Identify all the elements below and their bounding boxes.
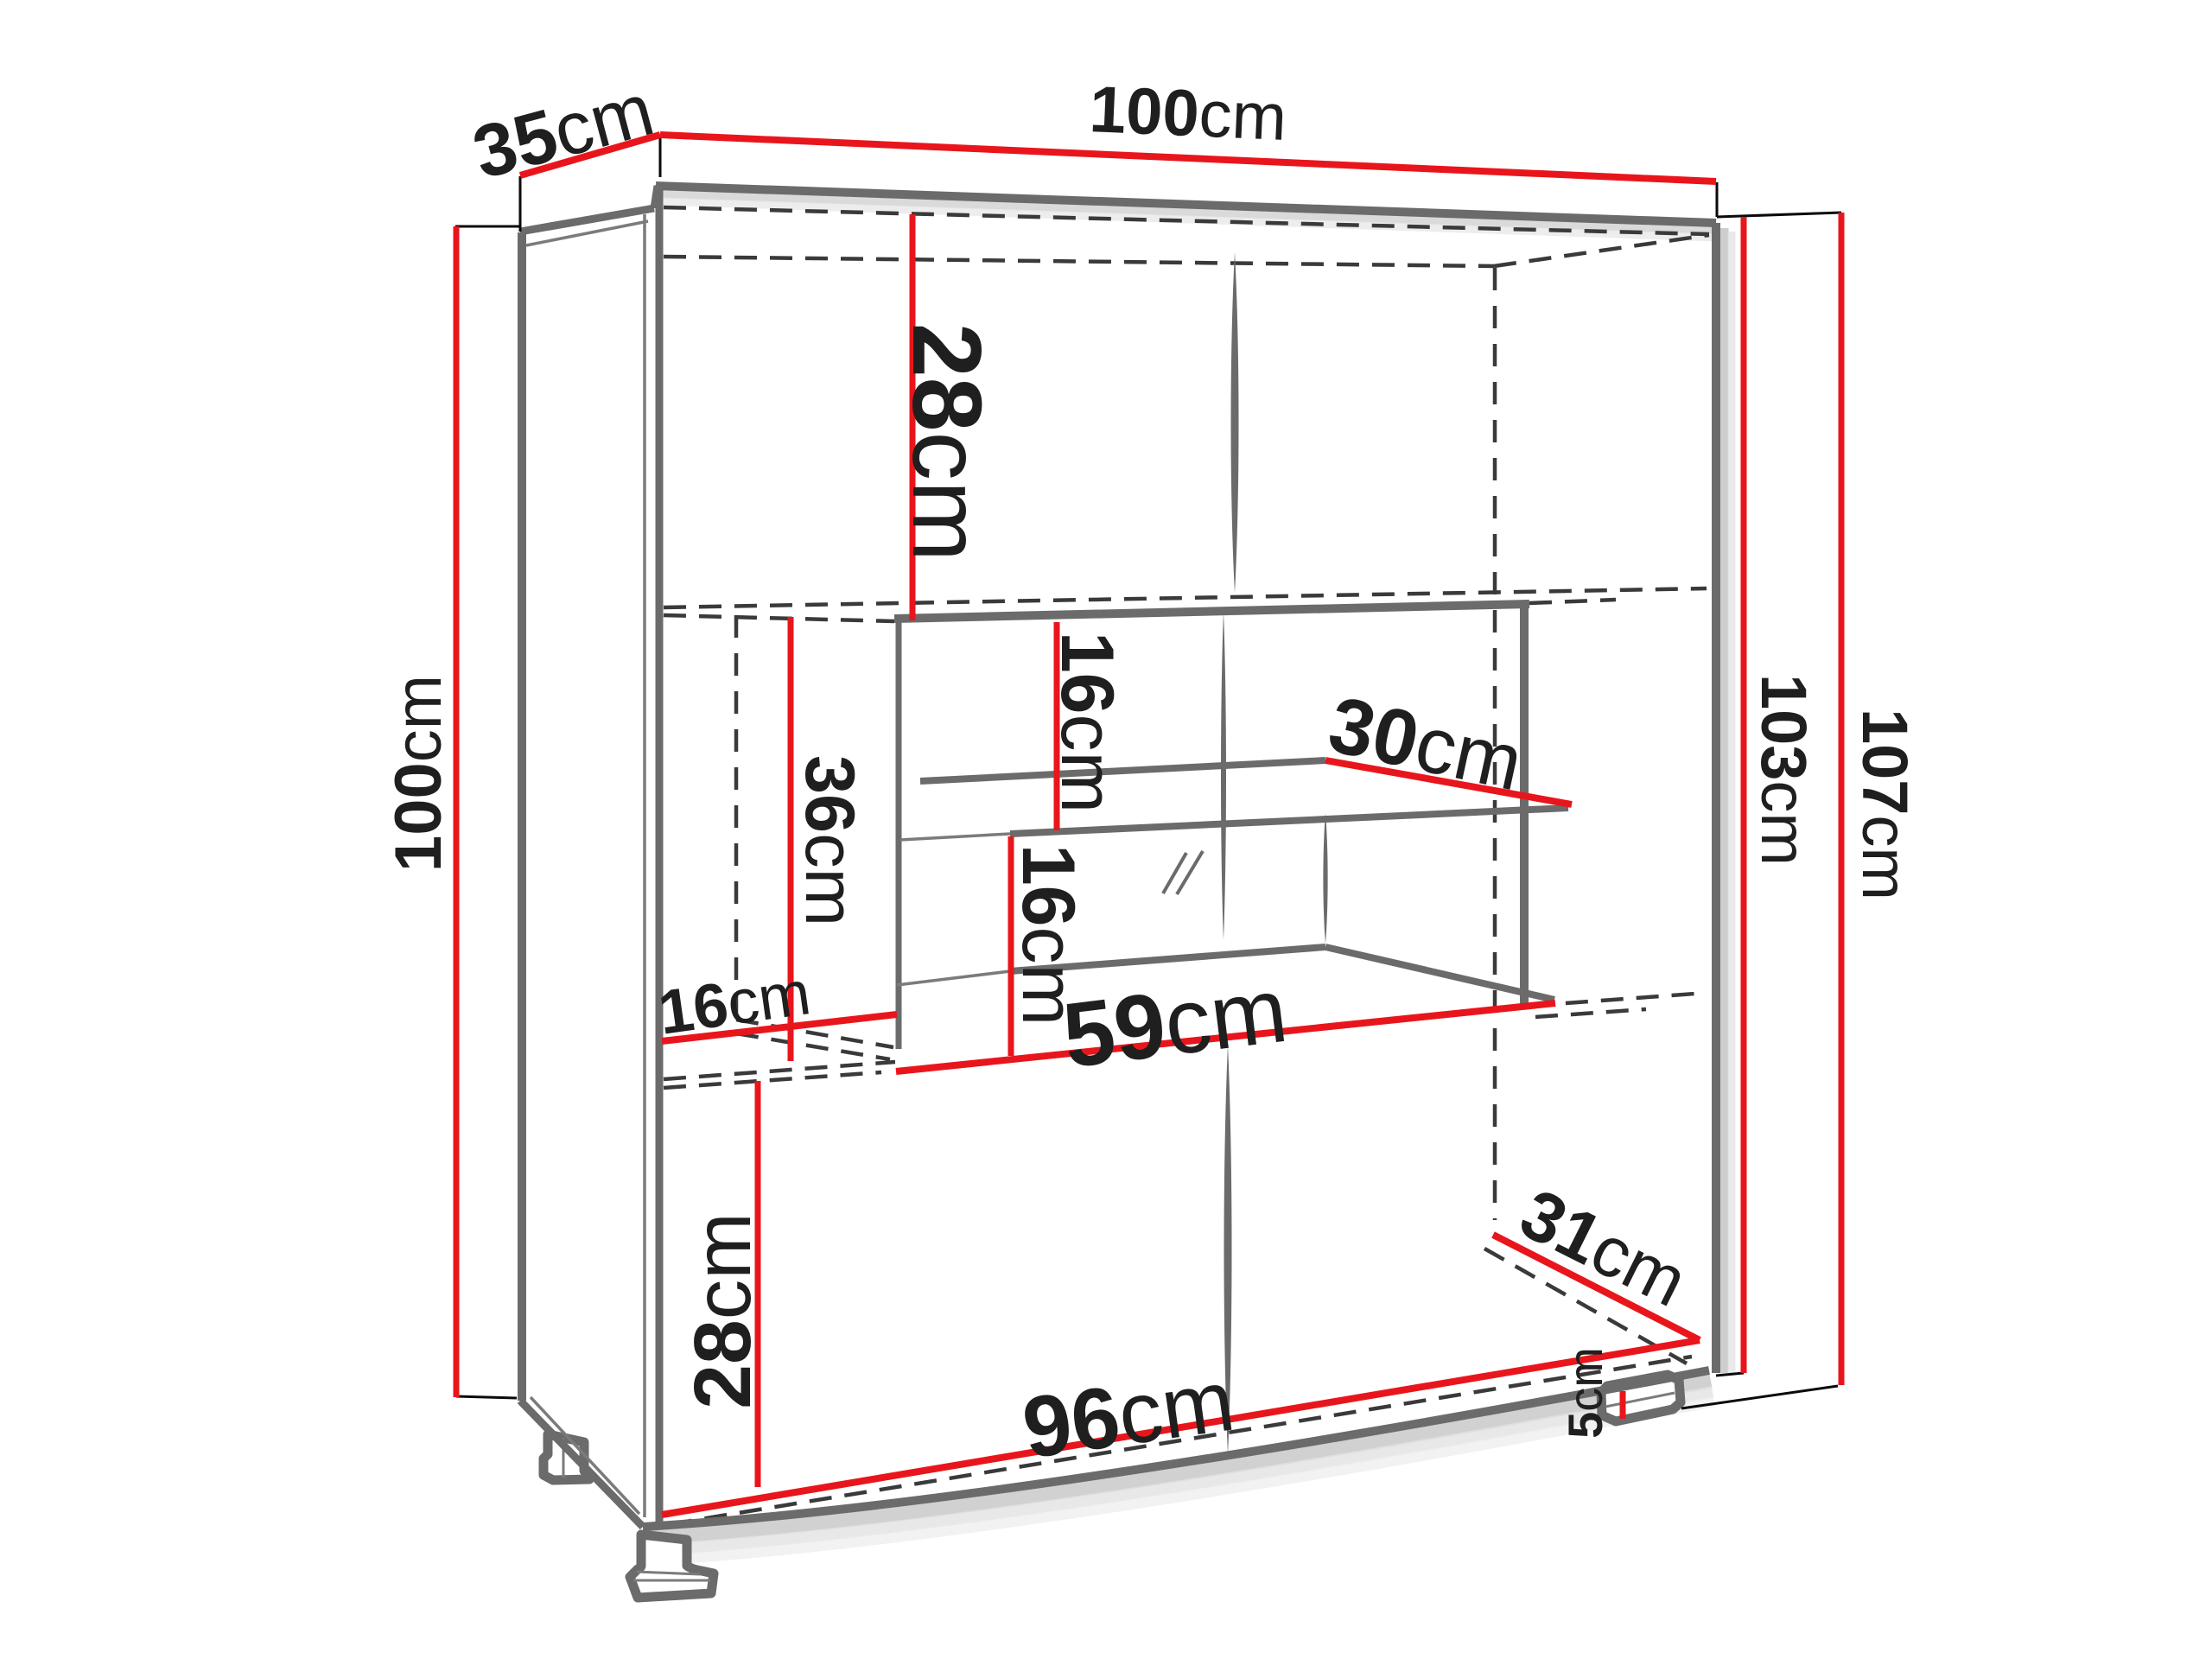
svg-text:16cm: 16cm	[1046, 632, 1128, 813]
svg-text:28cm: 28cm	[893, 323, 1001, 562]
svg-text:36cm: 36cm	[791, 755, 868, 926]
svg-text:100cm: 100cm	[1088, 73, 1288, 155]
svg-text:100cm: 100cm	[382, 675, 455, 872]
svg-text:107cm: 107cm	[1850, 709, 1922, 900]
svg-text:28cm: 28cm	[677, 1212, 767, 1408]
svg-text:103cm: 103cm	[1749, 674, 1821, 866]
svg-text:5cm: 5cm	[1558, 1347, 1612, 1439]
